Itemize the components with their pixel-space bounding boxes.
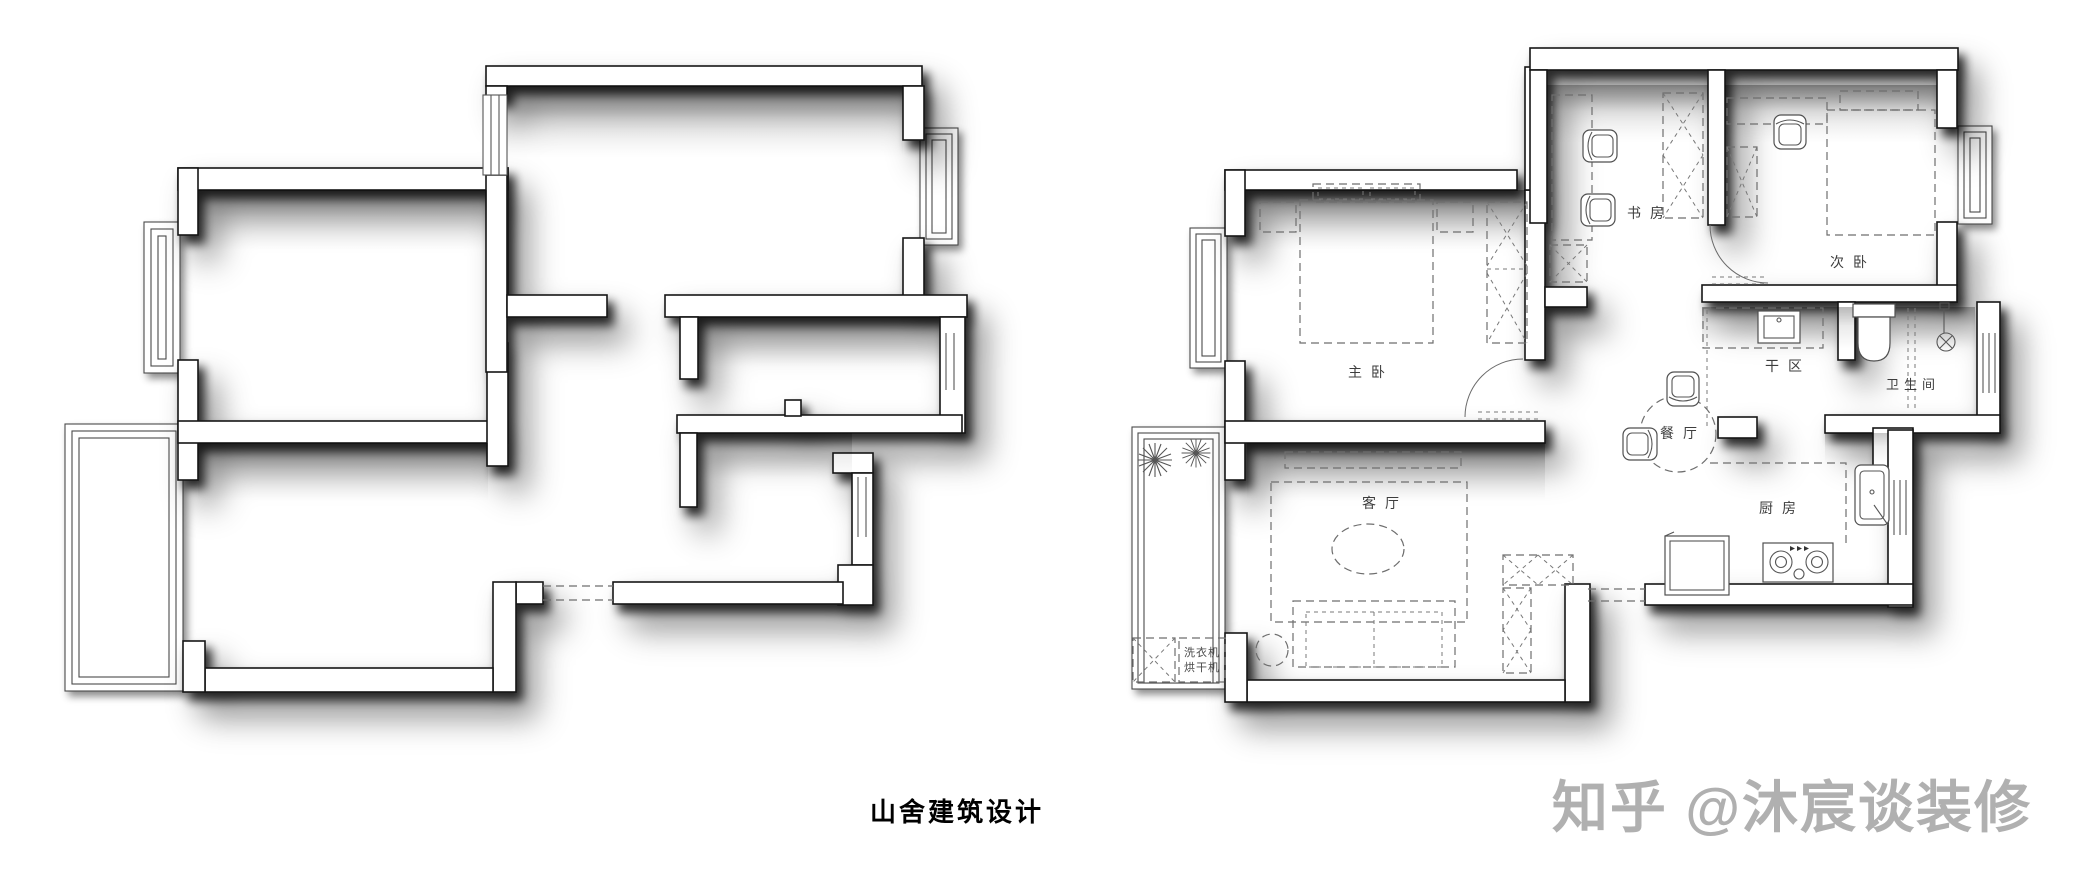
- caption-text: 山舍建筑设计: [870, 797, 1044, 827]
- entry-opening-dash: [543, 586, 613, 600]
- kitchen-sink-icon: [1855, 465, 1889, 525]
- side-table-icon: [1256, 634, 1288, 666]
- room-label-dining: 餐厅: [1660, 425, 1706, 441]
- window-bay-icon: [144, 222, 180, 373]
- room-label-living: 客厅: [1362, 495, 1408, 511]
- floor-plan-left: [65, 66, 967, 692]
- window-bay-icon: [920, 128, 958, 245]
- room-label-bathroom: 卫生间: [1886, 377, 1940, 392]
- room-label-secondary-bedroom: 次卧: [1830, 254, 1876, 270]
- cabinet-icon: [1503, 555, 1573, 673]
- floorplan-page: 书房 次卧 主卧 干区 卫生间 餐厅 厨房 客厅 洗衣机 烘干机 山舍建筑设计 …: [0, 0, 2082, 874]
- stove-icon: [1763, 543, 1833, 582]
- wardrobe-icon: [1727, 147, 1757, 217]
- toilet-icon: [1853, 304, 1895, 361]
- left-plan-walls: [178, 66, 967, 692]
- plant-icon: [1138, 443, 1172, 477]
- floorplan-canvas: 书房 次卧 主卧 干区 卫生间 餐厅 厨房 客厅 洗衣机 烘干机 山舍建筑设计 …: [0, 0, 2082, 874]
- plant-icon: [1182, 439, 1211, 468]
- room-label-master-bedroom: 主卧: [1348, 364, 1394, 380]
- watermark-text: 知乎 @沐宸谈装修: [1552, 776, 2032, 839]
- cabinet-icon: [1550, 245, 1587, 282]
- label-dryer: 烘干机: [1184, 660, 1220, 674]
- label-washing-machine: 洗衣机: [1184, 645, 1220, 659]
- chair-icon: [1667, 372, 1699, 406]
- chair-icon: [1581, 194, 1615, 226]
- room-label-study: 书房: [1627, 205, 1673, 221]
- coffee-table-icon: [1332, 524, 1404, 574]
- window-bay-icon: [1958, 126, 1992, 224]
- chair-icon: [1774, 115, 1806, 149]
- balcony-railing-icon: [65, 424, 183, 691]
- fridge-icon: [1665, 532, 1729, 595]
- floor-plan-right: 书房 次卧 主卧 干区 卫生间 餐厅 厨房 客厅 洗衣机 烘干机: [1132, 48, 2000, 702]
- chair-icon: [1623, 428, 1657, 460]
- removed-wall-dash: [1588, 589, 1645, 601]
- room-label-kitchen: 厨房: [1759, 500, 1805, 516]
- sofa-icon: [1293, 601, 1455, 667]
- window-bay-icon: [1190, 228, 1227, 368]
- room-label-dry-area: 干区: [1765, 358, 1811, 374]
- chair-icon: [1583, 130, 1617, 162]
